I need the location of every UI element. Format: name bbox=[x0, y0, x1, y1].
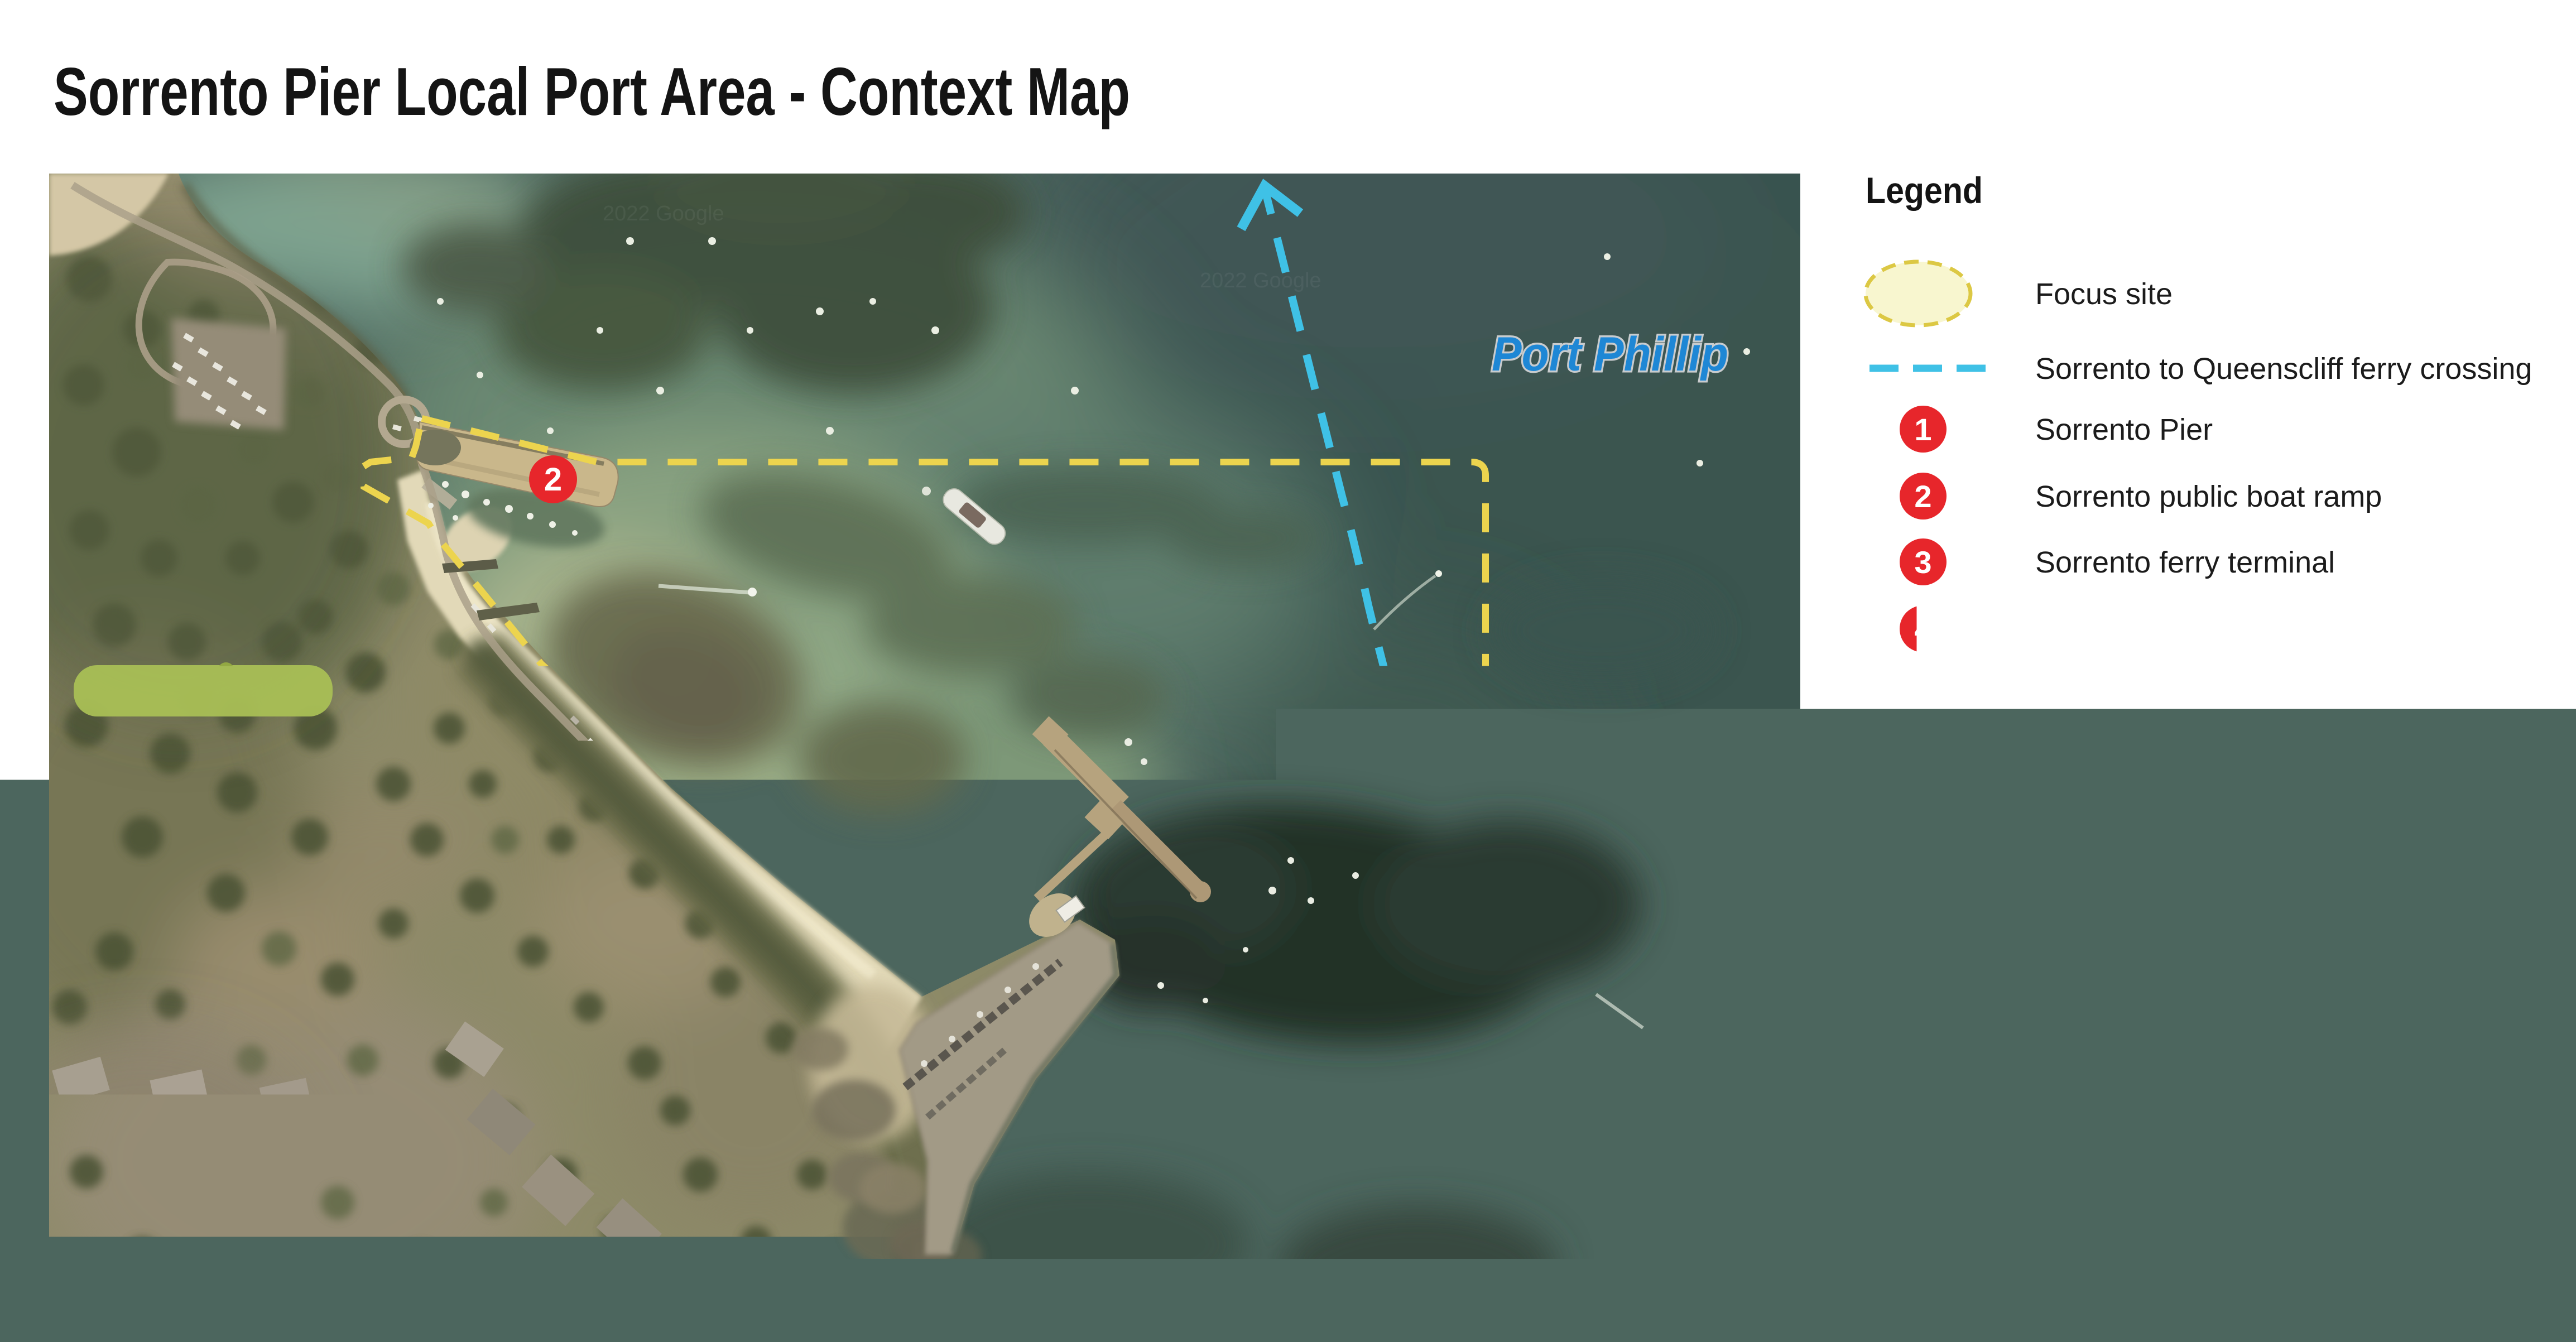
svg-text:Sorrento to Queenscliff ferry: Sorrento to Queenscliff ferry crossing bbox=[2035, 352, 2532, 386]
svg-text:2022 Google: 2022 Google bbox=[603, 202, 724, 225]
svg-text:Focus site: Focus site bbox=[2035, 277, 2173, 311]
svg-text:Map is indicative only: Map is indicative only bbox=[1506, 1281, 1786, 1316]
svg-text:2022 Google: 2022 Google bbox=[1200, 269, 1321, 292]
svg-text:Port Phillip: Port Phillip bbox=[1492, 328, 1728, 381]
svg-text:2: 2 bbox=[1914, 479, 1931, 514]
svg-text:1: 1 bbox=[1135, 807, 1153, 843]
svg-text:3: 3 bbox=[1914, 545, 1931, 580]
svg-text:1: 1 bbox=[1914, 412, 1931, 447]
svg-text:Sorrento beach car park: Sorrento beach car park bbox=[2035, 613, 2359, 646]
svg-text:N: N bbox=[1721, 1202, 1747, 1242]
svg-text:Sorrento Park: Sorrento Park bbox=[107, 674, 301, 709]
svg-text:Sorrento Pier: Sorrento Pier bbox=[2035, 413, 2213, 446]
svg-text:Sorrento public boat ramp: Sorrento public boat ramp bbox=[2035, 480, 2382, 513]
svg-text:2: 2 bbox=[544, 461, 562, 498]
svg-text:Sorrento ferry terminal: Sorrento ferry terminal bbox=[2035, 546, 2335, 579]
svg-text:Legend: Legend bbox=[1866, 170, 1983, 211]
svg-text:4: 4 bbox=[1914, 612, 1931, 647]
svg-text:4: 4 bbox=[724, 934, 742, 970]
svg-text:3: 3 bbox=[1051, 923, 1069, 959]
svg-text:Sorrento Pier Local Port Area: Sorrento Pier Local Port Area - Context … bbox=[54, 54, 1130, 129]
